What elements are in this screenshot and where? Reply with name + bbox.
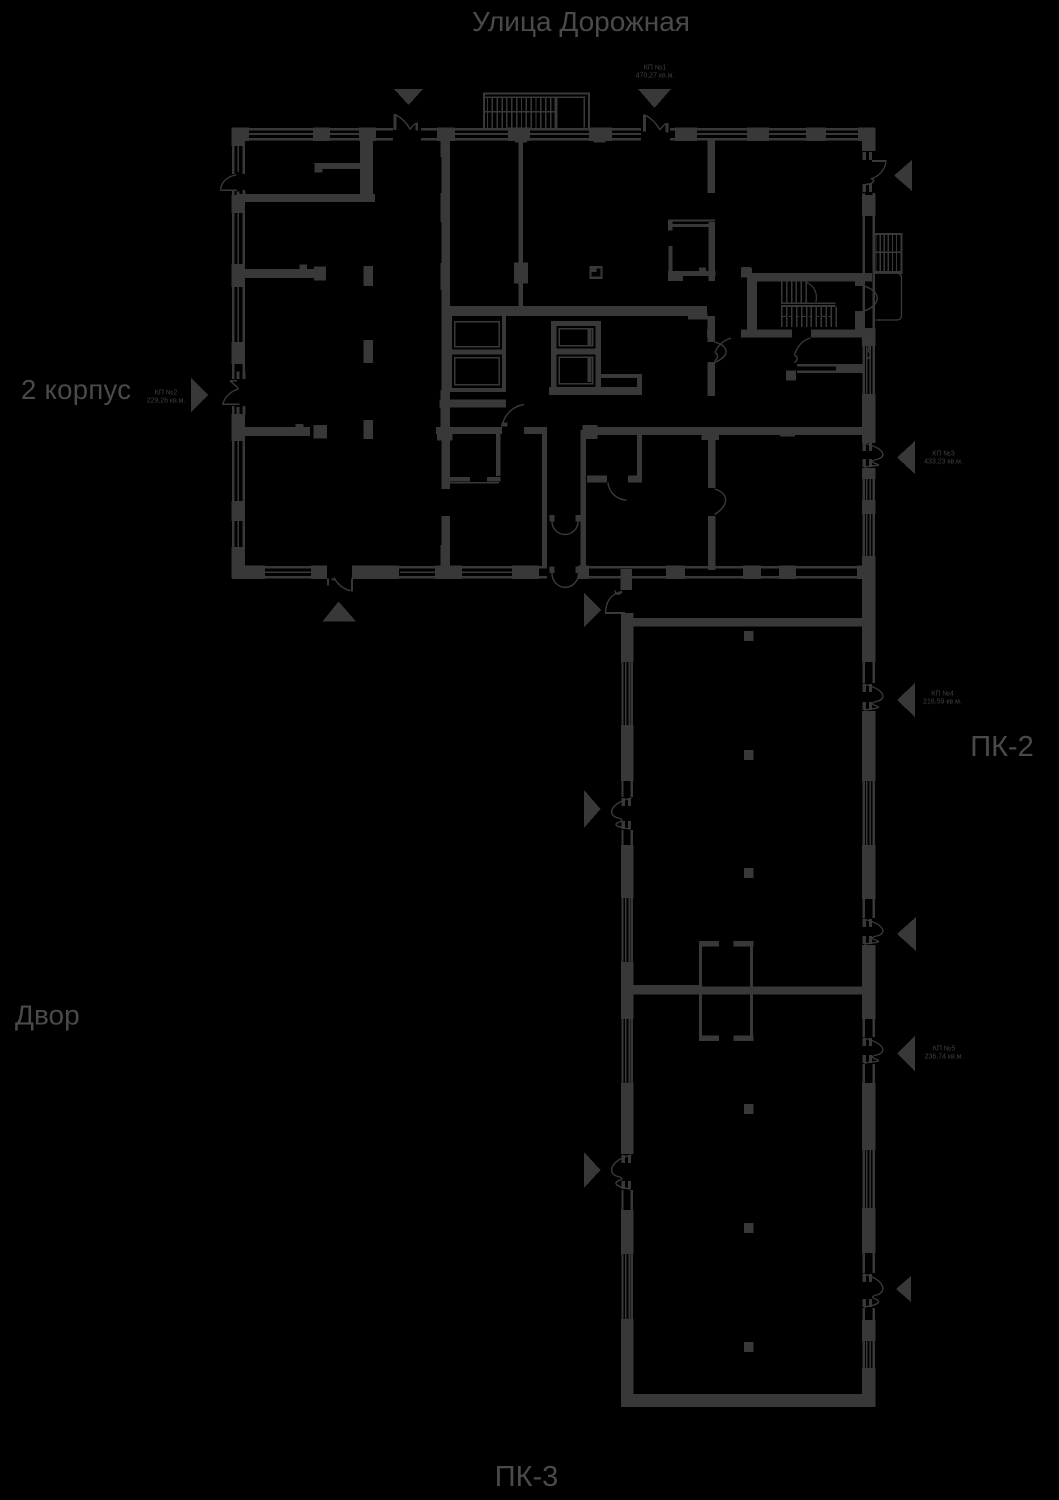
svg-text:470,27 кв.м.: 470,27 кв.м. xyxy=(636,73,675,80)
svg-text:2 корпус: 2 корпус xyxy=(21,374,131,405)
svg-text:КП №5: КП №5 xyxy=(933,1046,956,1053)
svg-text:ПК-2: ПК-2 xyxy=(970,731,1034,763)
svg-text:433,23 кв.м.: 433,23 кв.м. xyxy=(924,459,963,466)
svg-text:216,59 кв.м.: 216,59 кв.м. xyxy=(923,699,962,706)
svg-text:КП №3: КП №3 xyxy=(932,451,955,458)
svg-text:КП №1: КП №1 xyxy=(644,65,667,72)
svg-text:Улица Дорожная: Улица Дорожная xyxy=(472,6,690,37)
svg-text:КП №4: КП №4 xyxy=(931,691,954,698)
svg-text:229,26 кв.м.: 229,26 кв.м. xyxy=(147,398,186,405)
svg-text:Двор: Двор xyxy=(15,1000,80,1031)
svg-text:ПК-3: ПК-3 xyxy=(495,1461,559,1493)
svg-text:КП №2: КП №2 xyxy=(155,390,178,397)
svg-text:236,74 кв.м.: 236,74 кв.м. xyxy=(925,1054,964,1061)
